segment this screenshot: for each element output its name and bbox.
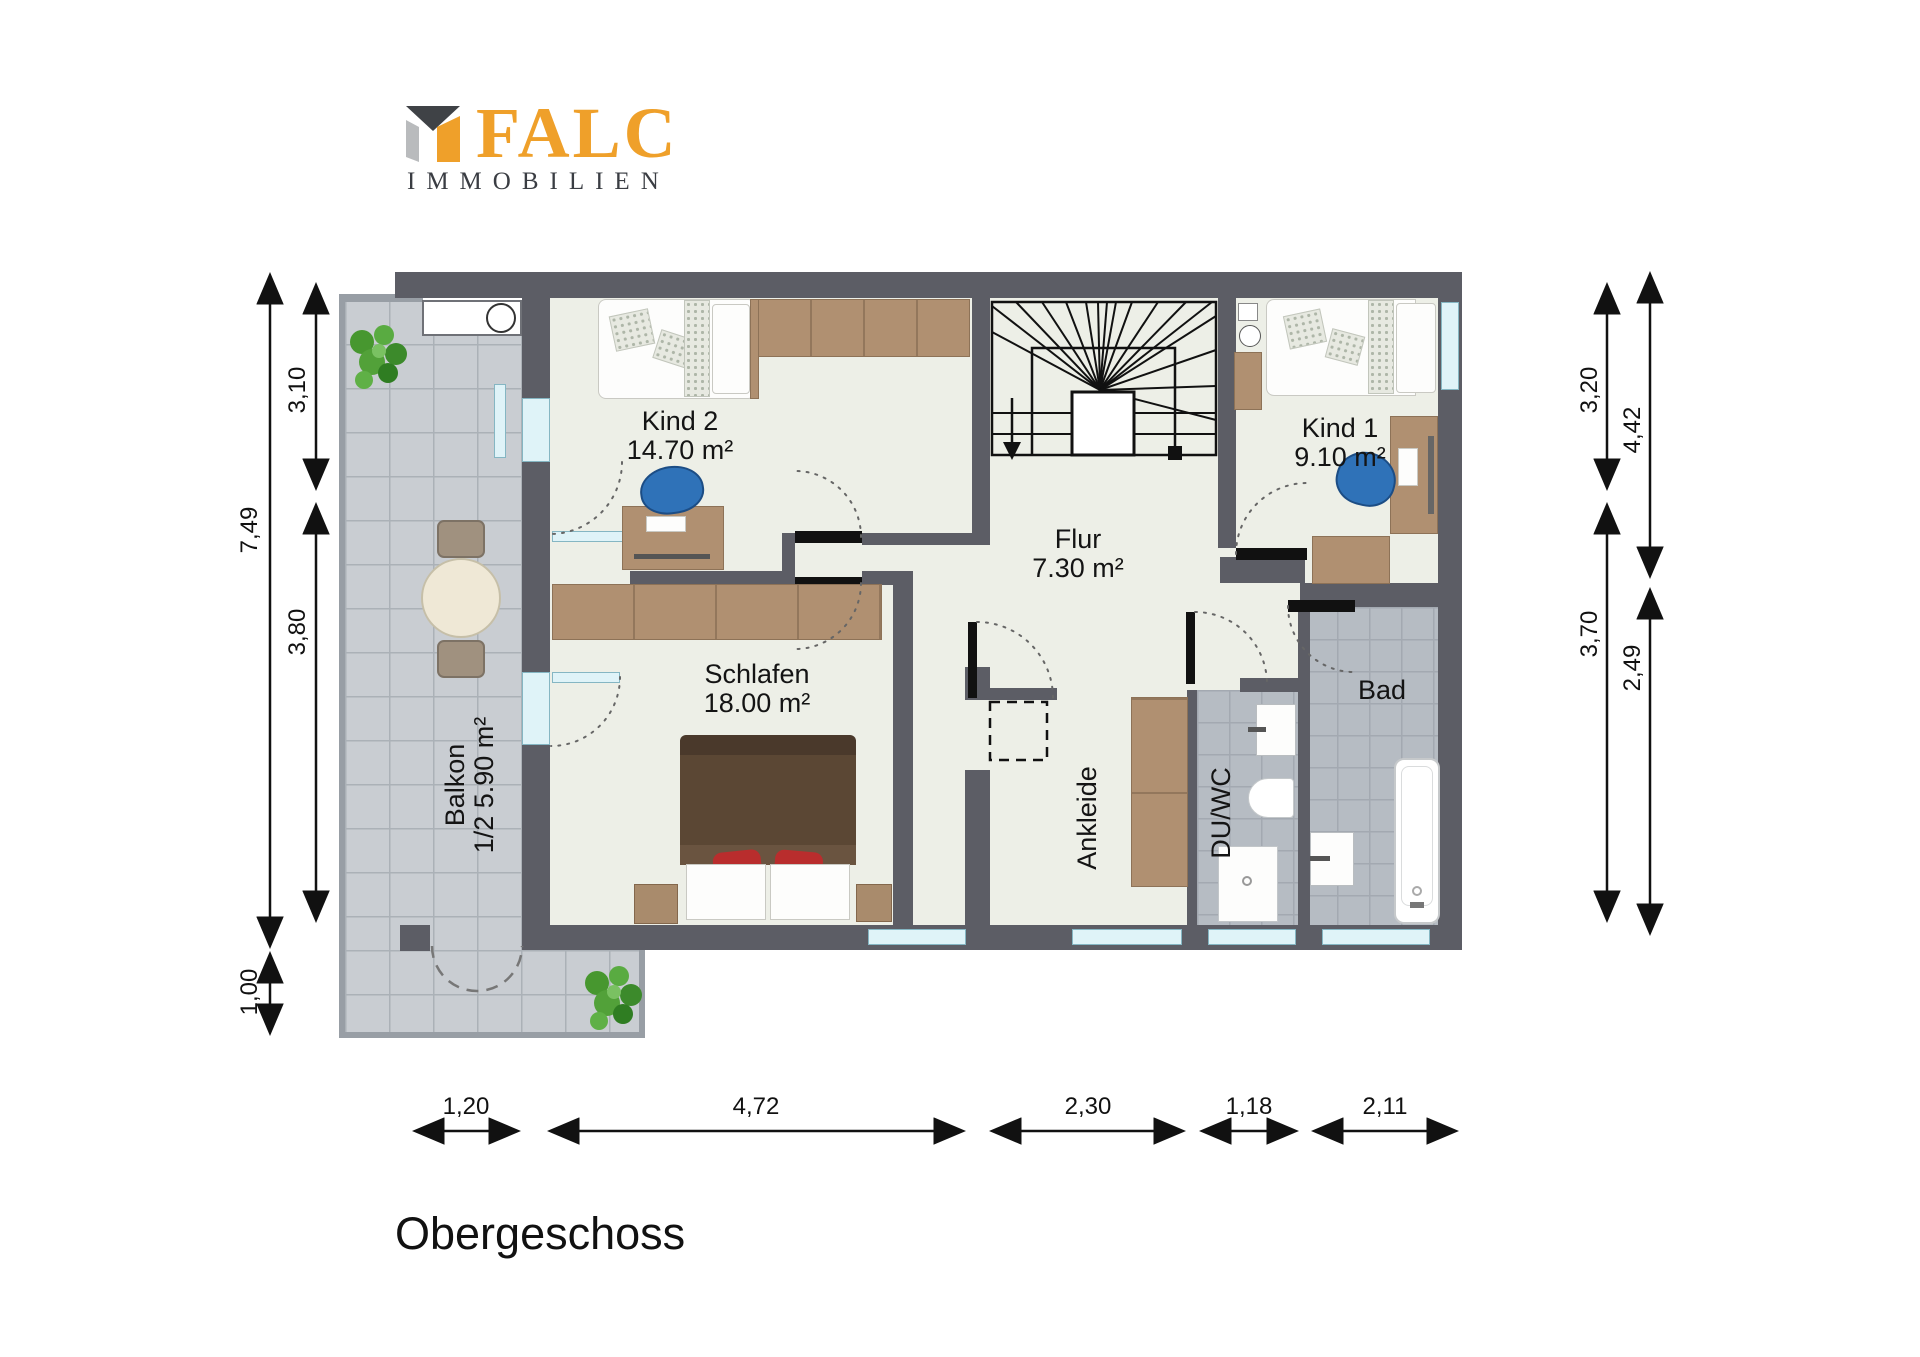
bed-duvet-fold [680, 845, 856, 865]
window-duwc [1208, 929, 1296, 945]
wall-bottom [522, 925, 1462, 950]
dim-right-inner-lower: 3,70 [1576, 611, 1604, 658]
dim-right-outer-upper: 4,42 [1619, 407, 1647, 454]
room-label-flur: Flur [1055, 525, 1102, 553]
faucet-icon [1248, 727, 1266, 732]
faucet-icon [1310, 856, 1330, 861]
wardrobe-schlafen [552, 584, 882, 640]
room-area-balkon: 1/2 5.90 m² [470, 717, 498, 854]
monitor [1428, 436, 1434, 514]
wall-shaft-stub [990, 688, 1057, 700]
dim-bottom-1: 1,20 [443, 1093, 490, 1121]
window-bad [1322, 929, 1430, 945]
floor-plan: Kind 2 14.70 m² Kind 1 9.10 m² Flur 7.30… [0, 0, 1920, 1357]
drain-icon [1412, 886, 1422, 896]
room-label-duwc: DU/WC [1207, 767, 1235, 858]
door-leaf-ankleide [968, 622, 977, 698]
bathtub-inner [1401, 766, 1433, 906]
balcony-table [421, 558, 501, 638]
wall-duwc-bad [1298, 607, 1310, 925]
dim-bottom-5: 2,11 [1363, 1093, 1408, 1121]
door-leaf-kind2 [795, 531, 862, 543]
balcony-door-kind2 [522, 398, 550, 462]
wall-kind2-schlafen-b [862, 571, 893, 585]
wardrobe-kind2 [758, 299, 970, 357]
wall-flur-kind1 [1218, 483, 1236, 548]
wall-ankleide-duwc [1187, 690, 1197, 925]
door-leaf-schlafen-glazed [552, 672, 620, 683]
shelf-box [1238, 303, 1258, 321]
window-ankleide [1072, 929, 1182, 945]
wall-kind2-schlafen-a [630, 571, 782, 585]
mattress-head [712, 304, 750, 394]
balcony-chair [437, 520, 485, 558]
room-area-kind1: 9.10 m² [1294, 443, 1386, 471]
wall-top [395, 272, 1462, 298]
wall-stub-left [522, 532, 550, 630]
room-label-ankleide: Ankleide [1073, 766, 1101, 870]
wall-schlafen-right [893, 571, 913, 925]
balcony-rail-bottom [339, 1032, 645, 1038]
dim-bottom-3: 2,30 [1065, 1093, 1112, 1121]
balcony-chair [437, 640, 485, 678]
keyboard [1398, 448, 1418, 486]
terrace-floor [345, 950, 639, 1035]
toilet [1248, 778, 1294, 818]
room-label-kind2: Kind 2 [642, 407, 719, 435]
skylight-circle-icon [486, 303, 516, 333]
balcony-door-schlafen [522, 672, 550, 745]
wall-connector [782, 533, 795, 585]
terrace-rail-right [639, 950, 645, 1038]
dim-right-inner-upper: 3,20 [1576, 367, 1604, 414]
room-area-flur: 7.30 m² [1032, 554, 1124, 582]
wall-kind1-corner [1220, 557, 1305, 583]
blanket [684, 300, 710, 397]
room-area-kind2: 14.70 m² [627, 436, 734, 464]
room-area-schlafen: 18.00 m² [704, 689, 811, 717]
door-leaf-duwc [1186, 612, 1195, 684]
nightstand [856, 884, 892, 922]
mattress-foot [770, 864, 850, 920]
mattress-foot [686, 864, 766, 920]
room-label-kind1: Kind 1 [1302, 414, 1379, 442]
dim-bottom-4: 1,18 [1226, 1093, 1273, 1121]
drain-icon [1242, 876, 1252, 886]
room-label-bad: Bad [1358, 676, 1406, 704]
wall-ankleide-left-b [965, 770, 990, 925]
window-kind1-right [1441, 302, 1459, 390]
mattress-head [1396, 303, 1436, 393]
wall-kind2-corridor [862, 533, 972, 545]
blanket [1368, 300, 1394, 394]
dim-bottom-2: 4,72 [733, 1093, 780, 1121]
wall-duwc-top [1240, 678, 1298, 692]
page-title: Obergeschoss [395, 1208, 685, 1260]
dim-left-upper: 3,10 [284, 367, 312, 414]
dim-right-outer-lower: 2,49 [1619, 645, 1647, 692]
dim-left-lower: 3,80 [284, 609, 312, 656]
floorplan-page: FALC IMMOBILIEN [0, 0, 1920, 1357]
faucet-icon [1410, 902, 1424, 908]
room-label-schlafen: Schlafen [704, 660, 809, 688]
door-leaf-kind2-glazed [552, 531, 628, 542]
room-label-balkon: Balkon [441, 744, 469, 827]
nightstand [634, 884, 678, 924]
keyboard [646, 516, 686, 532]
dim-left-balcony: 1,00 [236, 969, 264, 1016]
door-leaf-kind1 [1236, 548, 1307, 560]
wall-balcony-stub [400, 925, 430, 951]
cabinet-kind1 [1312, 536, 1390, 584]
shelf-circle-icon [1239, 325, 1261, 347]
bed-headboard [680, 735, 856, 757]
balcony-rail-left [339, 296, 345, 1035]
wardrobe-ankleide [1131, 697, 1188, 887]
window-schlafen [868, 929, 966, 945]
door-leaf-bad [1288, 600, 1355, 612]
shelf-cabinet [1234, 352, 1262, 410]
door-leaf-balcony [494, 384, 506, 458]
monitor [634, 554, 710, 559]
wall-kind2-stair [972, 272, 990, 545]
dim-left-total: 7,49 [236, 507, 264, 554]
